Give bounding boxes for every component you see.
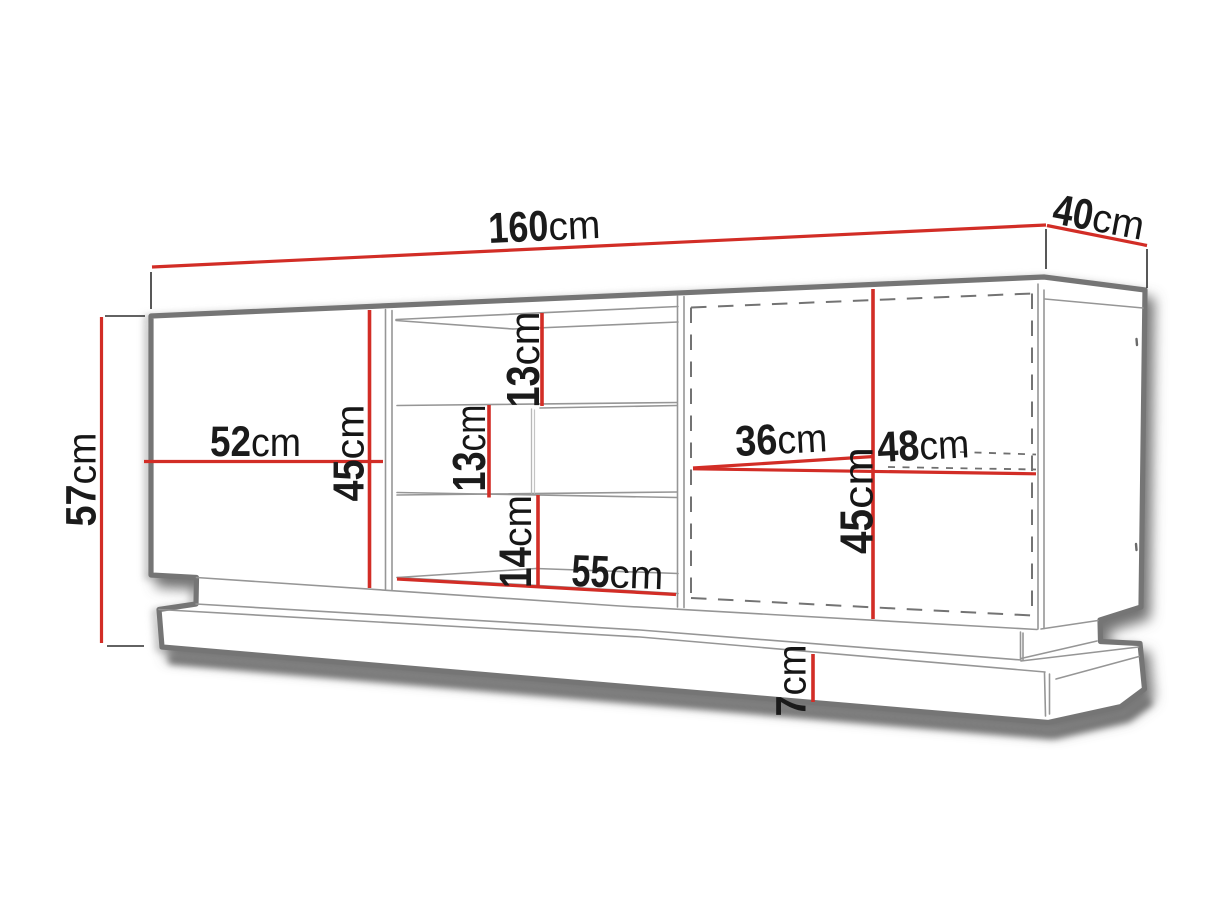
svg-text:13cm: 13cm [497,312,549,408]
svg-text:14cm: 14cm [490,495,541,588]
svg-text:55cm: 55cm [571,545,665,599]
svg-text:48cm: 48cm [876,419,970,472]
svg-text:160cm: 160cm [487,200,601,253]
svg-text:45cm: 45cm [325,405,374,502]
svg-text:52cm: 52cm [210,418,301,466]
svg-text:57cm: 57cm [58,433,106,527]
svg-text:7cm: 7cm [768,645,816,717]
svg-text:13cm: 13cm [443,405,495,492]
svg-text:36cm: 36cm [734,413,828,466]
svg-text:45cm: 45cm [831,447,883,554]
svg-text:40cm: 40cm [1049,186,1148,250]
